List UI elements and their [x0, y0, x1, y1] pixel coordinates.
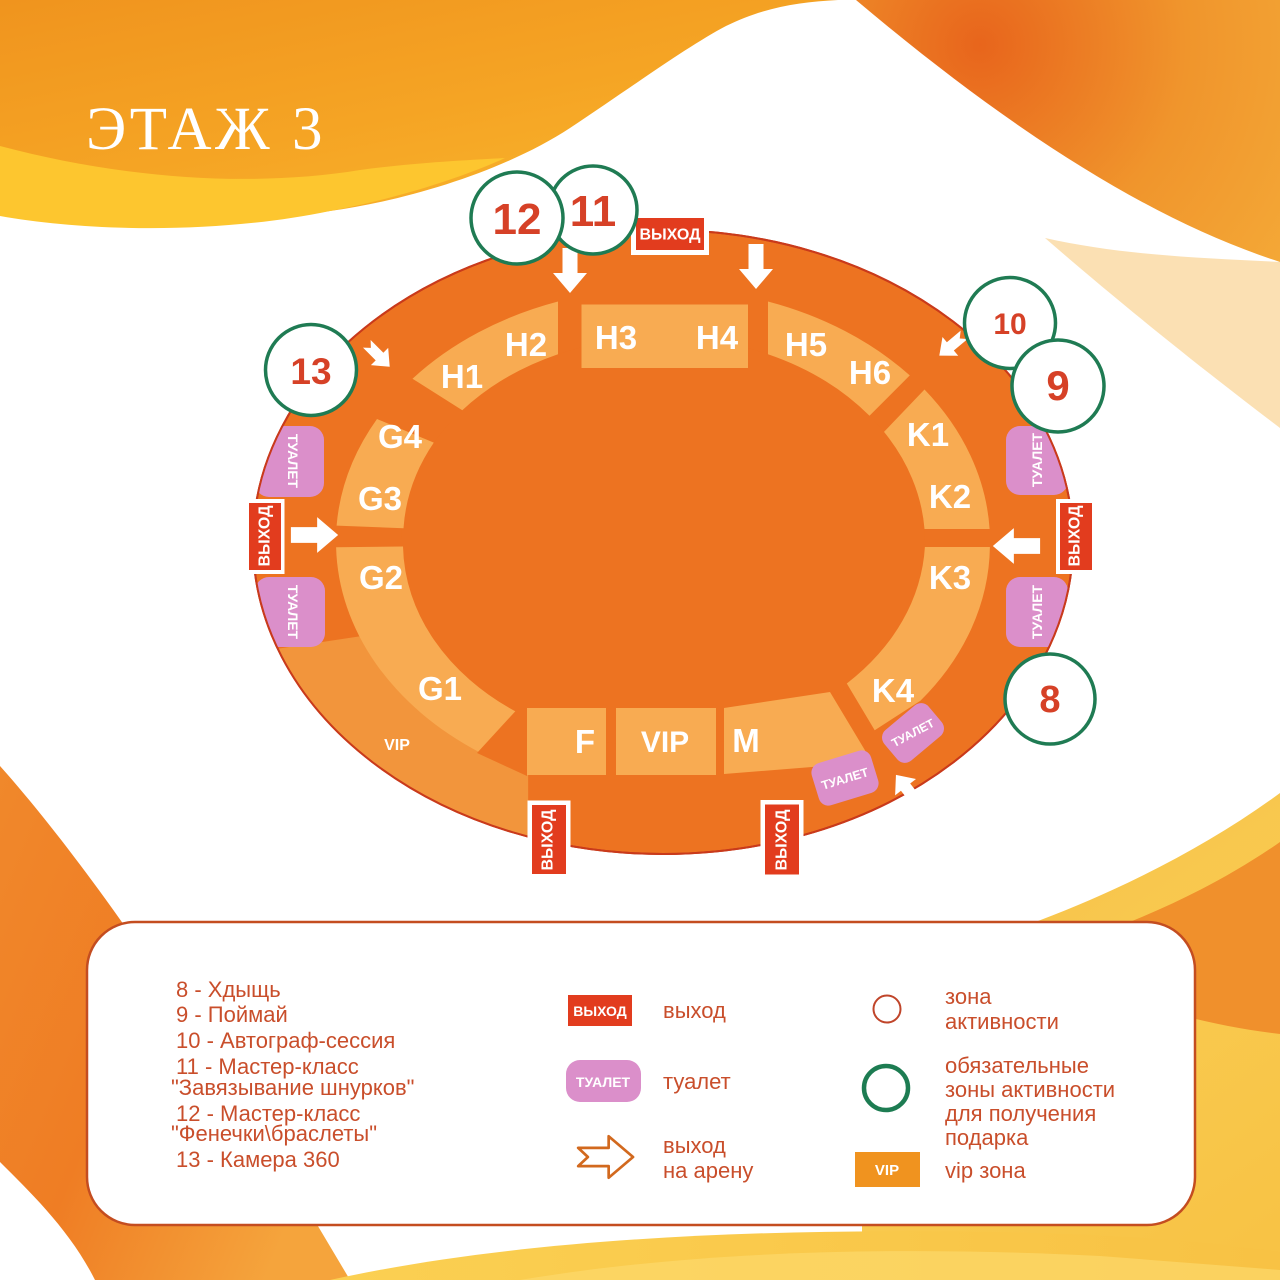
svg-text:ТУАЛЕТ: ТУАЛЕТ [576, 1074, 631, 1090]
svg-text:13: 13 [290, 351, 331, 392]
svg-text:обязательные: обязательные [945, 1053, 1089, 1078]
svg-text:ВЫХОД: ВЫХОД [774, 809, 791, 871]
svg-text:10 - Автограф-сессия: 10 - Автограф-сессия [176, 1028, 395, 1053]
svg-text:11: 11 [570, 187, 617, 236]
svg-text:ТУАЛЕТ: ТУАЛЕТ [1029, 432, 1045, 487]
svg-text:8 - Хдыщь: 8 - Хдыщь [176, 977, 281, 1002]
svg-text:"Завязывание шнурков": "Завязывание шнурков" [171, 1075, 414, 1100]
svg-text:13 - Камера 360: 13 - Камера 360 [176, 1147, 340, 1172]
svg-text:H6: H6 [849, 354, 891, 391]
svg-text:зоны активности: зоны активности [945, 1077, 1115, 1102]
svg-text:9: 9 [1046, 362, 1069, 409]
svg-text:8: 8 [1039, 679, 1060, 721]
svg-text:ВЫХОД: ВЫХОД [257, 505, 274, 567]
svg-text:K3: K3 [929, 559, 971, 596]
svg-text:G1: G1 [418, 670, 462, 707]
svg-text:выход: выход [663, 998, 726, 1023]
svg-text:ВЫХОД: ВЫХОД [639, 227, 701, 244]
svg-text:G2: G2 [359, 559, 403, 596]
svg-text:VIP: VIP [641, 726, 689, 759]
svg-text:H1: H1 [441, 358, 483, 395]
svg-text:G4: G4 [378, 418, 423, 455]
svg-text:H4: H4 [696, 319, 739, 356]
svg-text:"Фенечки\браслеты": "Фенечки\браслеты" [171, 1121, 377, 1146]
svg-text:ТУАЛЕТ: ТУАЛЕТ [285, 434, 301, 489]
svg-text:H5: H5 [785, 326, 827, 363]
svg-text:K2: K2 [929, 478, 971, 515]
svg-text:активности: активности [945, 1009, 1059, 1034]
svg-text:ВЫХОД: ВЫХОД [573, 1003, 626, 1019]
svg-text:vip зона: vip зона [945, 1158, 1026, 1183]
svg-text:туалет: туалет [663, 1069, 731, 1094]
svg-text:12: 12 [493, 195, 542, 244]
svg-text:H3: H3 [595, 319, 637, 356]
svg-text:9 - Поймай: 9 - Поймай [176, 1002, 288, 1027]
svg-text:подарка: подарка [945, 1125, 1029, 1150]
svg-text:H2: H2 [505, 326, 547, 363]
svg-text:для получения: для получения [945, 1101, 1096, 1126]
svg-text:ЭТАЖ 3: ЭТАЖ 3 [86, 96, 326, 163]
svg-text:F: F [575, 723, 595, 760]
svg-text:K1: K1 [907, 416, 949, 453]
svg-text:ВЫХОД: ВЫХОД [1067, 505, 1084, 567]
svg-text:ТУАЛЕТ: ТУАЛЕТ [1029, 584, 1045, 639]
svg-text:G3: G3 [358, 480, 402, 517]
svg-text:M: M [732, 722, 760, 759]
svg-text:ВЫХОД: ВЫХОД [540, 809, 557, 871]
svg-text:на арену: на арену [663, 1158, 753, 1183]
svg-text:ТУАЛЕТ: ТУАЛЕТ [285, 585, 301, 640]
svg-text:VIP: VIP [384, 737, 410, 754]
svg-text:зона: зона [945, 984, 992, 1009]
svg-text:VIP: VIP [875, 1162, 899, 1179]
svg-text:10: 10 [993, 308, 1026, 341]
svg-text:K4: K4 [872, 672, 915, 709]
svg-text:выход: выход [663, 1133, 726, 1158]
